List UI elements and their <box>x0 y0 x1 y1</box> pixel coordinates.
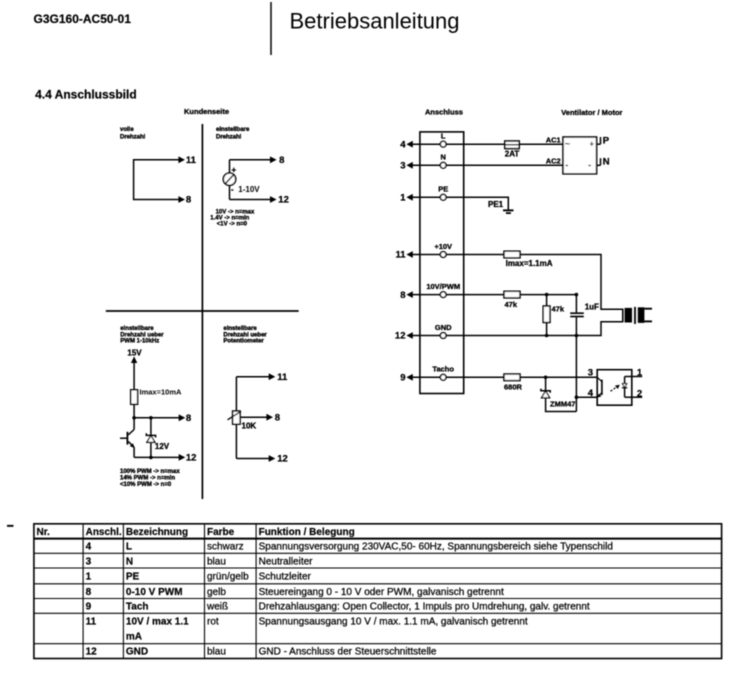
svg-text:8: 8 <box>275 412 280 423</box>
svg-text:3: 3 <box>86 556 92 567</box>
svg-text:Spannungsversorgung 230VAC,50-: Spannungsversorgung 230VAC,50- 60Hz, Spa… <box>259 542 613 553</box>
svg-text:+10V: +10V <box>434 242 452 251</box>
svg-text:Ventilator / Motor: Ventilator / Motor <box>561 108 622 117</box>
svg-text:47k: 47k <box>552 305 565 314</box>
svg-text:Tacho: Tacho <box>432 365 454 374</box>
svg-text:680R: 680R <box>504 382 523 391</box>
svg-text:11: 11 <box>395 250 406 261</box>
svg-text:blau: blau <box>207 556 226 567</box>
svg-text:einstellbare: einstellbare <box>216 127 250 133</box>
svg-text:mA: mA <box>126 631 142 642</box>
svg-text:4.4 Anschlussbild: 4.4 Anschlussbild <box>35 87 137 101</box>
svg-text:12: 12 <box>86 647 98 658</box>
svg-text:Imax=10mA: Imax=10mA <box>140 388 182 397</box>
svg-text:10V -> n=max: 10V -> n=max <box>216 210 255 216</box>
svg-text:0-10 V PWM: 0-10 V PWM <box>126 587 183 598</box>
svg-text:weiß: weiß <box>206 602 228 613</box>
svg-text:+: + <box>589 140 594 149</box>
svg-text:Drehzahlausgang: Open Collecto: Drehzahlausgang: Open Collector, 1 Impul… <box>259 602 590 613</box>
svg-text:12: 12 <box>395 331 406 342</box>
svg-text:GND - Anschluss der Steuerschn: GND - Anschluss der Steuerschnittstelle <box>259 647 437 658</box>
svg-text:N: N <box>126 556 133 567</box>
svg-text:100% PWM -> n=max: 100% PWM -> n=max <box>120 469 180 475</box>
svg-text:8: 8 <box>186 195 191 206</box>
svg-text:volle: volle <box>120 127 134 133</box>
svg-text:Anschl.: Anschl. <box>86 527 122 538</box>
svg-text:10V / max 1.1: 10V / max 1.1 <box>126 616 189 627</box>
svg-text:AC1: AC1 <box>546 136 561 145</box>
svg-text:11: 11 <box>186 155 197 166</box>
svg-text:8: 8 <box>279 155 284 166</box>
svg-text:Steuereingang 0 - 10 V oder PW: Steuereingang 0 - 10 V oder PWM, galvani… <box>259 587 504 598</box>
svg-text:1uF: 1uF <box>585 303 599 312</box>
svg-text:8: 8 <box>400 290 405 301</box>
svg-text:Kundenseite: Kundenseite <box>184 107 229 116</box>
svg-text:P: P <box>603 135 610 146</box>
svg-text:-: - <box>566 160 569 169</box>
svg-text:Neutralleiter: Neutralleiter <box>259 556 314 567</box>
svg-text:einstellbare: einstellbare <box>120 326 154 332</box>
svg-text:8: 8 <box>86 587 92 598</box>
svg-text:12: 12 <box>278 195 289 206</box>
svg-text:Potentiometer: Potentiometer <box>223 339 264 345</box>
svg-text:8: 8 <box>186 413 191 424</box>
svg-text:PWM 1-10kHz: PWM 1-10kHz <box>120 339 159 345</box>
svg-text:2AT: 2AT <box>505 150 520 159</box>
svg-text:<10% PWM -> n=0: <10% PWM -> n=0 <box>120 482 172 488</box>
svg-text:Nr.: Nr. <box>37 527 51 538</box>
svg-text:10V/PWM: 10V/PWM <box>426 282 460 291</box>
svg-text:Tach: Tach <box>126 602 149 613</box>
svg-text:GND: GND <box>435 323 452 332</box>
svg-text:4: 4 <box>588 388 594 399</box>
svg-text:L: L <box>441 132 446 141</box>
svg-text:11: 11 <box>277 372 288 383</box>
svg-text:1: 1 <box>637 367 643 378</box>
svg-text:12: 12 <box>186 453 197 464</box>
svg-text:schwarz: schwarz <box>207 542 244 553</box>
svg-text:9: 9 <box>86 602 92 613</box>
svg-text:+: + <box>232 165 237 174</box>
svg-text:N: N <box>440 153 445 162</box>
svg-text:N: N <box>603 157 610 168</box>
svg-text:einstellbare: einstellbare <box>223 326 257 332</box>
svg-text:PE: PE <box>126 571 140 582</box>
svg-text:gelb: gelb <box>207 587 226 598</box>
svg-text:4: 4 <box>86 542 92 553</box>
svg-text:G3G160-AC50-01: G3G160-AC50-01 <box>34 12 132 26</box>
svg-text:1: 1 <box>400 193 406 204</box>
svg-text:PE: PE <box>438 185 448 194</box>
svg-text:GND: GND <box>126 647 148 658</box>
svg-text:-: - <box>231 185 234 194</box>
svg-text:9: 9 <box>400 373 405 384</box>
svg-text:grün/gelb: grün/gelb <box>207 571 249 582</box>
svg-text:<1V -> n=0: <1V -> n=0 <box>217 222 248 228</box>
svg-text:Imax=1.1mA: Imax=1.1mA <box>506 259 553 268</box>
svg-text:blau: blau <box>207 647 226 658</box>
svg-text:1.4V -> n=min: 1.4V -> n=min <box>210 216 249 222</box>
svg-text:Drehzahl: Drehzahl <box>120 134 146 140</box>
svg-text:ZMM47: ZMM47 <box>550 399 575 408</box>
svg-text:Drehzahl ueber: Drehzahl ueber <box>120 332 164 338</box>
svg-text:2: 2 <box>637 388 642 399</box>
svg-text:-: - <box>588 160 591 169</box>
svg-text:1-10V: 1-10V <box>238 185 260 194</box>
svg-text:11: 11 <box>86 616 97 627</box>
svg-text:10K: 10K <box>242 421 257 430</box>
svg-text:Funktion / Belegung: Funktion / Belegung <box>259 527 355 538</box>
svg-text:Schutzleiter: Schutzleiter <box>259 571 312 582</box>
svg-text:Drehzahl: Drehzahl <box>216 134 242 140</box>
svg-text:~: ~ <box>565 139 571 150</box>
svg-text:3: 3 <box>400 161 405 172</box>
svg-text:1: 1 <box>86 571 92 582</box>
svg-text:14% PWM -> n=min: 14% PWM -> n=min <box>120 476 175 482</box>
svg-text:Bezeichnung: Bezeichnung <box>126 527 188 538</box>
svg-text:L: L <box>126 542 132 553</box>
svg-text:47k: 47k <box>505 300 518 309</box>
svg-text:4: 4 <box>400 139 406 150</box>
svg-text:AC2: AC2 <box>546 156 561 165</box>
svg-text:Drehzahl ueber: Drehzahl ueber <box>223 332 267 338</box>
svg-text:PE1: PE1 <box>488 200 504 209</box>
svg-text:Farbe: Farbe <box>207 527 235 538</box>
svg-text:3: 3 <box>588 368 593 379</box>
svg-text:Betriebsanleitung: Betriebsanleitung <box>290 9 460 34</box>
svg-text:Anschluss: Anschluss <box>425 107 463 116</box>
svg-text:rot: rot <box>207 616 219 627</box>
svg-text:Spannungsausgang 10 V / max. 1: Spannungsausgang 10 V / max. 1.1 mA, gal… <box>259 616 528 627</box>
svg-text:12V: 12V <box>155 442 170 451</box>
svg-text:15V: 15V <box>127 348 142 357</box>
svg-text:12: 12 <box>277 454 288 465</box>
